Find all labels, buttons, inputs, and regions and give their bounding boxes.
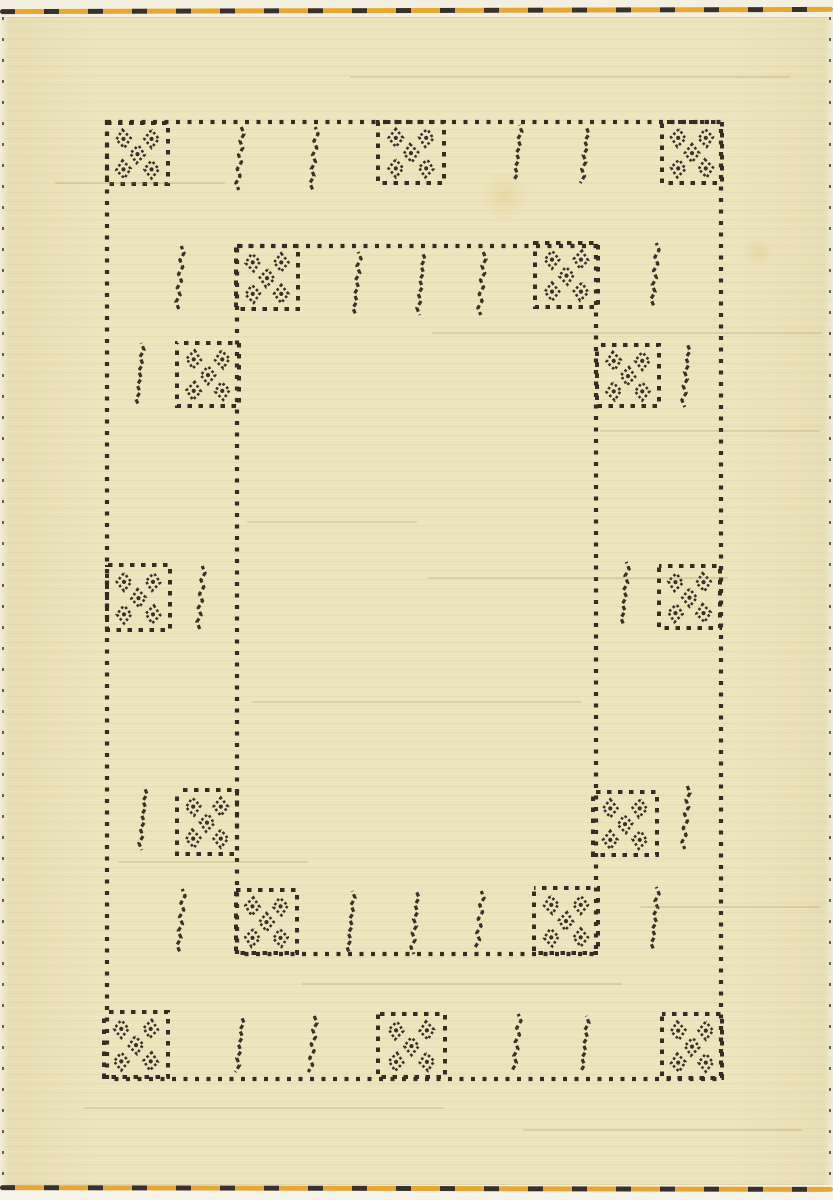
diamond-center-dot — [550, 258, 554, 262]
weave-streak — [118, 861, 308, 863]
diamond-center-dot — [122, 580, 126, 584]
stitch-line — [197, 566, 205, 629]
stitch-line — [235, 1016, 244, 1072]
stitch-line — [580, 127, 589, 183]
diamond-center-dot — [205, 821, 209, 825]
weave-streak — [523, 1129, 803, 1131]
diamond-center-dot — [640, 389, 644, 393]
weave-streak — [428, 577, 728, 579]
stitch-line — [236, 127, 244, 190]
diamond-center-dot — [701, 580, 705, 584]
diamond-center-dot — [424, 136, 428, 140]
diamond-center-dot — [278, 904, 282, 908]
stitch-line — [417, 252, 425, 315]
stitch-line — [621, 562, 629, 625]
diamond-center-dot — [250, 936, 254, 940]
stain-mark — [479, 170, 531, 222]
diamond-center-dot — [149, 137, 153, 141]
diamond-center-dot — [191, 805, 195, 809]
stitch-line — [176, 246, 184, 309]
diamond-center-dot — [134, 1043, 138, 1047]
weave-streak — [84, 1107, 444, 1109]
stitch-line — [651, 887, 659, 950]
weave-streak — [600, 430, 820, 432]
diamond-center-dot — [564, 919, 568, 923]
diamond-center-dot — [149, 1059, 153, 1063]
diamond-center-dot — [265, 276, 269, 280]
stitch-line — [512, 1014, 521, 1070]
stitch-line — [475, 891, 484, 947]
diamond-center-dot — [676, 1029, 680, 1033]
diamond-center-dot — [549, 935, 553, 939]
diamond-center-dot — [192, 389, 196, 393]
diamond-center-dot — [394, 1060, 398, 1064]
diamond-center-dot — [638, 806, 642, 810]
diamond-center-dot — [676, 1061, 680, 1065]
diamond-center-dot — [550, 290, 554, 294]
diamond-center-dot — [424, 166, 428, 170]
diamond-center-dot — [579, 258, 583, 262]
diamond-center-dot — [704, 166, 708, 170]
diamond-center-dot — [704, 1061, 708, 1065]
diamond-center-dot — [135, 152, 139, 156]
diamond-center-dot — [687, 596, 691, 600]
diamond-center-dot — [119, 1027, 123, 1031]
diamond-center-dot — [149, 1027, 153, 1031]
stitch-line — [347, 891, 355, 954]
diamond-center-dot — [425, 1028, 429, 1032]
diamond-center-dot — [122, 612, 126, 616]
diamond-center-dot — [564, 274, 568, 278]
diamond-center-dot — [219, 837, 223, 841]
diamond-center-dot — [626, 374, 630, 378]
diamond-center-dot — [579, 290, 583, 294]
diamond-center-dot — [608, 806, 612, 810]
diamond-center-dot — [250, 904, 254, 908]
diamond-center-dot — [136, 596, 140, 600]
diamond-center-dot — [220, 389, 224, 393]
diamond-center-dot — [394, 166, 398, 170]
diamond-center-dot — [192, 357, 196, 361]
diamond-center-dot — [549, 903, 553, 907]
diamond-center-dot — [151, 580, 155, 584]
stitch-line — [478, 252, 486, 315]
weave-streak — [55, 182, 225, 184]
diamond-center-dot — [425, 1060, 429, 1064]
diamond-center-dot — [704, 136, 708, 140]
diamond-center-dot — [673, 611, 677, 615]
stitch-line — [411, 891, 419, 954]
stitch-line — [310, 127, 318, 190]
diamond-center-dot — [409, 151, 413, 155]
diamond-center-dot — [278, 936, 282, 940]
diamond-center-dot — [676, 166, 680, 170]
diamond-center-dot — [612, 389, 616, 393]
diamond-center-dot — [640, 359, 644, 363]
diamond-center-dot — [690, 1045, 694, 1049]
diamond-center-dot — [409, 1044, 413, 1048]
diamond-center-dot — [220, 357, 224, 361]
diamond-center-dot — [219, 805, 223, 809]
diamond-center-dot — [579, 903, 583, 907]
diamond-center-dot — [251, 292, 255, 296]
diamond-center-dot — [151, 612, 155, 616]
diamond-center-dot — [119, 1059, 123, 1063]
diamond-center-dot — [394, 1028, 398, 1032]
diamond-center-dot — [279, 260, 283, 264]
diamond-center-dot — [701, 611, 705, 615]
stitch-line — [139, 787, 147, 850]
diamond-center-dot — [676, 136, 680, 140]
stitch-line — [580, 1016, 589, 1072]
diamond-center-dot — [251, 260, 255, 264]
stitch-line — [308, 1016, 317, 1072]
diamond-center-dot — [149, 167, 153, 171]
stitch-line — [682, 344, 690, 407]
stitch-line — [353, 252, 361, 315]
weave-streak — [252, 701, 582, 703]
diamond-center-dot — [638, 838, 642, 842]
rug-photo — [0, 0, 833, 1200]
diamond-center-dot — [623, 822, 627, 826]
diamond-center-dot — [191, 837, 195, 841]
stitch-line — [136, 343, 144, 406]
diamond-center-dot — [612, 359, 616, 363]
stitch-line — [682, 786, 690, 849]
diamond-center-dot — [279, 292, 283, 296]
diamond-center-dot — [264, 920, 268, 924]
weave-streak — [247, 521, 417, 523]
stitch-line — [177, 889, 185, 952]
stitch-line — [651, 243, 659, 306]
diamond-center-dot — [704, 1029, 708, 1033]
stain-mark — [742, 236, 774, 268]
weave-streak — [350, 76, 790, 78]
diamond-center-dot — [206, 373, 210, 377]
diamond-center-dot — [394, 136, 398, 140]
inner-dotted-border — [237, 246, 596, 954]
weave-streak — [640, 906, 820, 908]
weave-streak — [302, 983, 622, 985]
diamond-center-dot — [608, 838, 612, 842]
diamond-center-dot — [690, 151, 694, 155]
diamond-center-dot — [579, 935, 583, 939]
weave-streak — [432, 332, 822, 334]
diamond-center-dot — [673, 580, 677, 584]
rug-motif-layer — [0, 0, 833, 1200]
diamond-center-dot — [121, 137, 125, 141]
diamond-center-dot — [121, 167, 125, 171]
